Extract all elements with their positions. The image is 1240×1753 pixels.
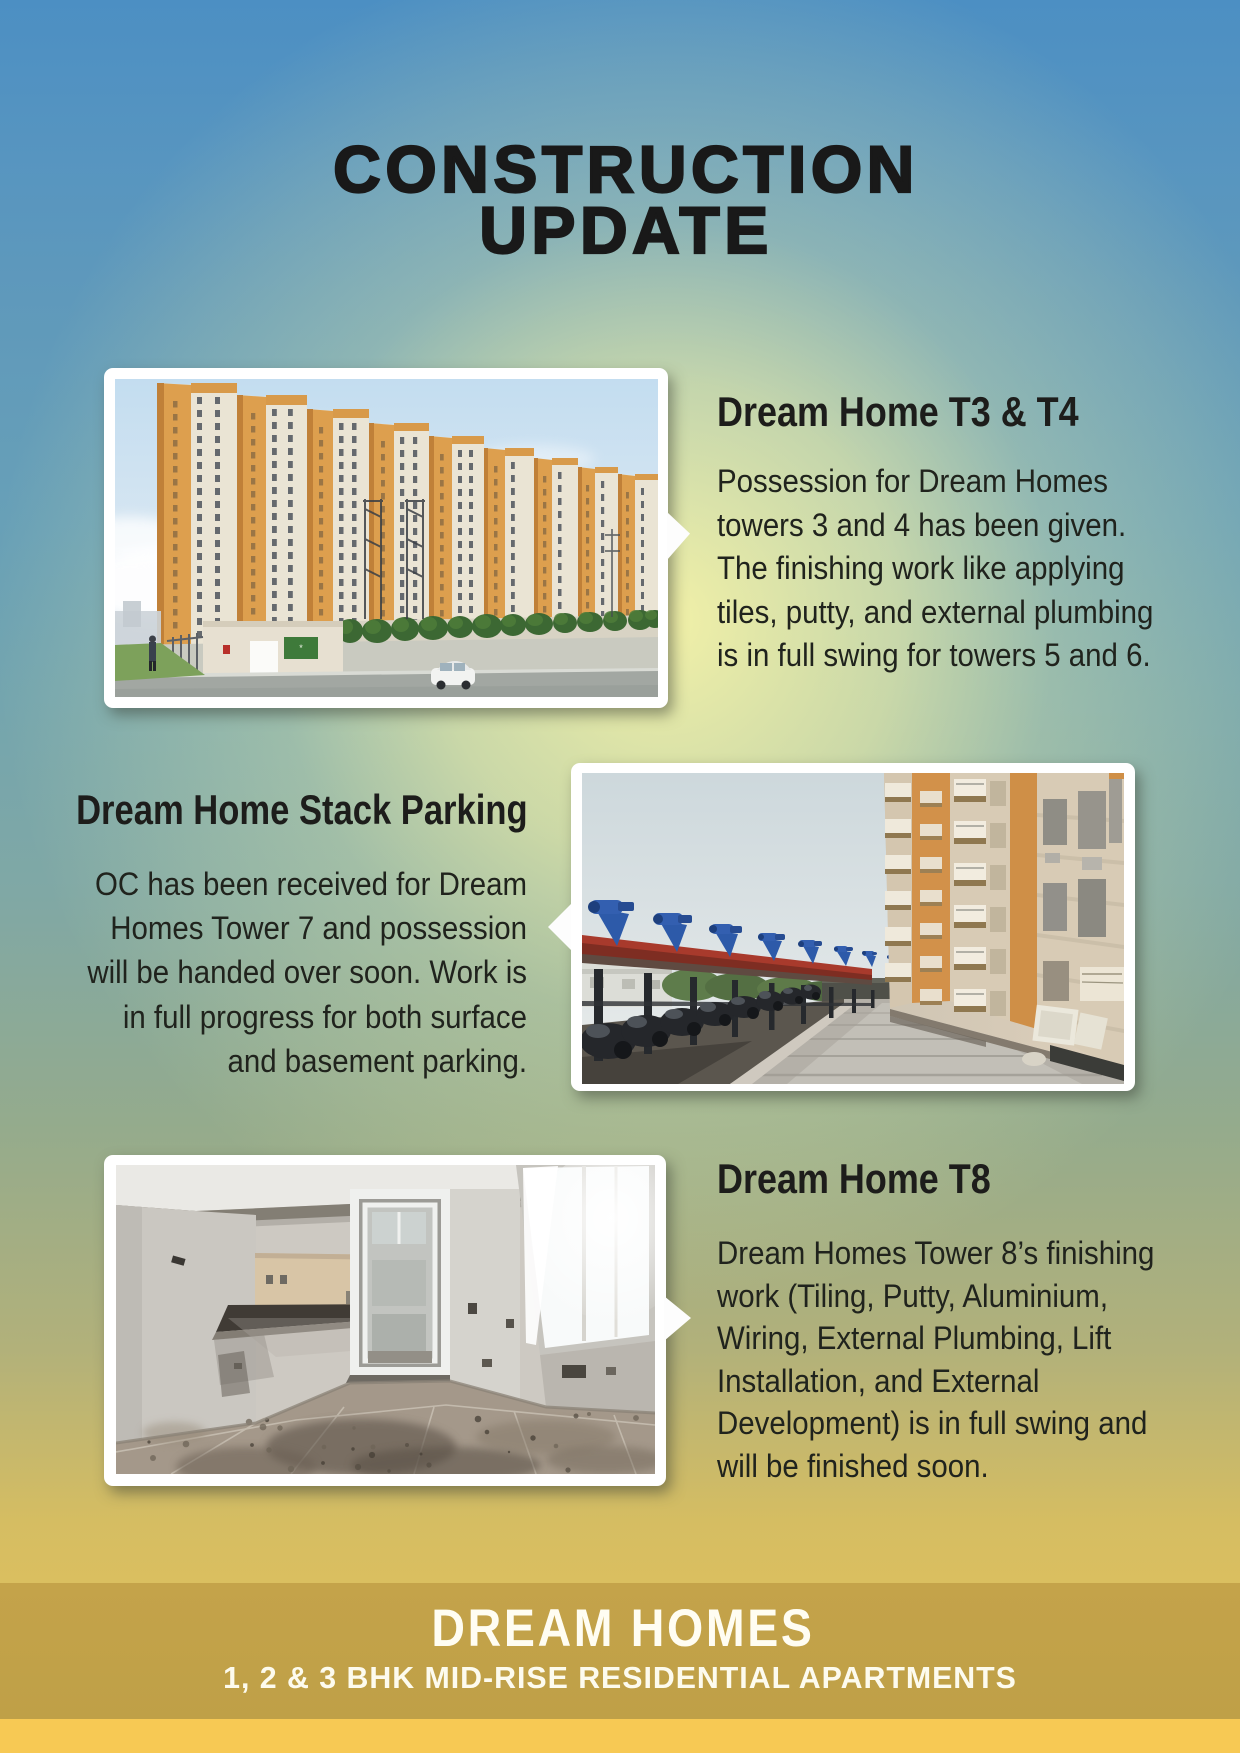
svg-text:*: * [299,643,303,653]
